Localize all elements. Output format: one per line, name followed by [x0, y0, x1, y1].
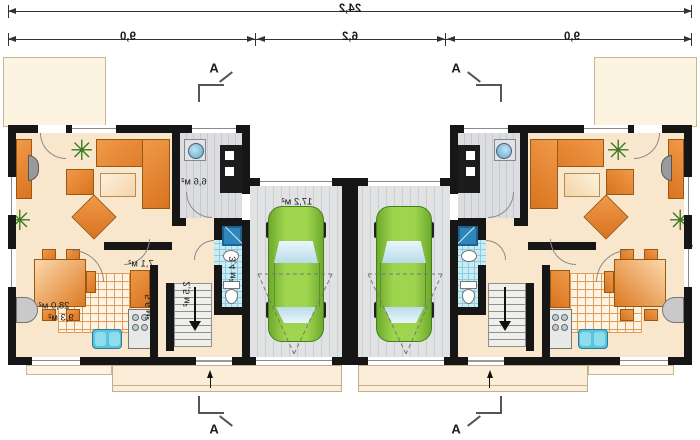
- entry-threshold: [468, 360, 504, 362]
- floor-plan-canvas: ✳ ✳: [0, 0, 700, 440]
- room-label-living-left: 28,0 м²: [39, 301, 70, 312]
- room-label-corridor-left: 5,6 м²: [144, 294, 155, 320]
- dim-label-middle: 6,2: [342, 31, 358, 43]
- garage-side-door-opening: [450, 194, 458, 220]
- armchair: [606, 169, 634, 195]
- garage-window-top: [368, 178, 440, 186]
- section-letter-bottom-left: A: [209, 422, 218, 437]
- stairs: [488, 283, 526, 347]
- room-label-garage-left: 17,2 м²: [282, 197, 313, 208]
- burner-icon: [561, 314, 568, 321]
- wall-bathroom-left: [478, 226, 486, 240]
- wall-kitchen-divider: [542, 265, 550, 357]
- entry-arrow: [487, 370, 493, 378]
- wall-vestibule-hall: [458, 218, 486, 226]
- terrace-door-opening: [634, 125, 662, 133]
- wall-living-vestibule: [520, 133, 528, 218]
- section-marker-top-right: [454, 58, 508, 102]
- dim-label-total: 24,2: [339, 3, 361, 15]
- side-step-right: [588, 365, 674, 375]
- shower-drain-line: [457, 227, 475, 245]
- marker-line: [476, 84, 502, 86]
- window-living-left-1: [684, 177, 692, 215]
- tv-icon: [661, 155, 672, 181]
- garage-right: [350, 178, 458, 365]
- washing-machine: [494, 139, 516, 161]
- coffee-table: [564, 173, 600, 197]
- porch-step-line: [359, 385, 587, 386]
- house-unit-right: ✳ ✳: [450, 125, 692, 365]
- window-living-left-2: [684, 249, 692, 287]
- cabinet-slot: [466, 167, 475, 176]
- room-label-bathroom-left: 3,4 м²: [228, 256, 239, 282]
- marker-tick: [467, 415, 481, 426]
- window-living-top: [584, 125, 628, 133]
- sink-basin: [594, 332, 605, 346]
- burner-icon: [552, 314, 559, 321]
- cabinet-slot: [466, 151, 475, 160]
- dining-chair: [644, 309, 658, 321]
- cooktop: [548, 309, 572, 349]
- section-marker-bottom-right: [454, 396, 508, 440]
- marker-line: [500, 396, 502, 414]
- section-letter-top-left: A: [209, 61, 218, 76]
- bathroom-sink: [461, 250, 477, 262]
- window-vestibule-top: [464, 125, 508, 133]
- marker-line: [476, 412, 502, 414]
- room-label-kitchen-left: 9,3 м²: [48, 313, 74, 324]
- dim-label-right: 9,0: [564, 31, 580, 43]
- room-label-stairs-left: 2,5 м²: [182, 281, 193, 307]
- stairs-arrow-stem: [504, 287, 506, 321]
- kitchen-sink-unit: [662, 297, 684, 323]
- stairs-direction-arrow: [499, 321, 511, 331]
- marker-tick: [467, 71, 481, 82]
- kitchen-cabinet: [550, 270, 570, 308]
- washer-drum-icon: [496, 143, 512, 159]
- shower: [458, 226, 478, 246]
- sink-basin: [580, 332, 591, 346]
- terrace-right: [594, 57, 697, 127]
- window-kitchen-bottom: [620, 357, 668, 365]
- garage-wall-middle: [350, 178, 358, 365]
- garage-door-swing-lines: [350, 178, 458, 365]
- dining-chair: [620, 309, 634, 321]
- dim-label-left: 9,0: [120, 31, 136, 43]
- stairs-stringer-wall: [526, 283, 534, 351]
- vestibule-cabinet: [458, 145, 480, 193]
- plant-icon: ✳: [607, 137, 630, 165]
- room-label-hall-left: 7,1 м²: [128, 259, 154, 270]
- burner-icon: [552, 324, 559, 331]
- wall-bathroom-bottom: [458, 307, 486, 315]
- sofa-section-side: [530, 139, 558, 209]
- wall-vestibule-hall: [514, 218, 528, 226]
- toilet-tank: [460, 281, 477, 289]
- garage-door: [368, 357, 444, 365]
- marker-line: [500, 84, 502, 102]
- kitchen-sink: [578, 329, 608, 349]
- burner-icon: [561, 324, 568, 331]
- room-label-vestibule-left: 6,6 м²: [181, 177, 207, 188]
- porch-driveway-right: [358, 365, 588, 392]
- wall-left: [684, 125, 692, 365]
